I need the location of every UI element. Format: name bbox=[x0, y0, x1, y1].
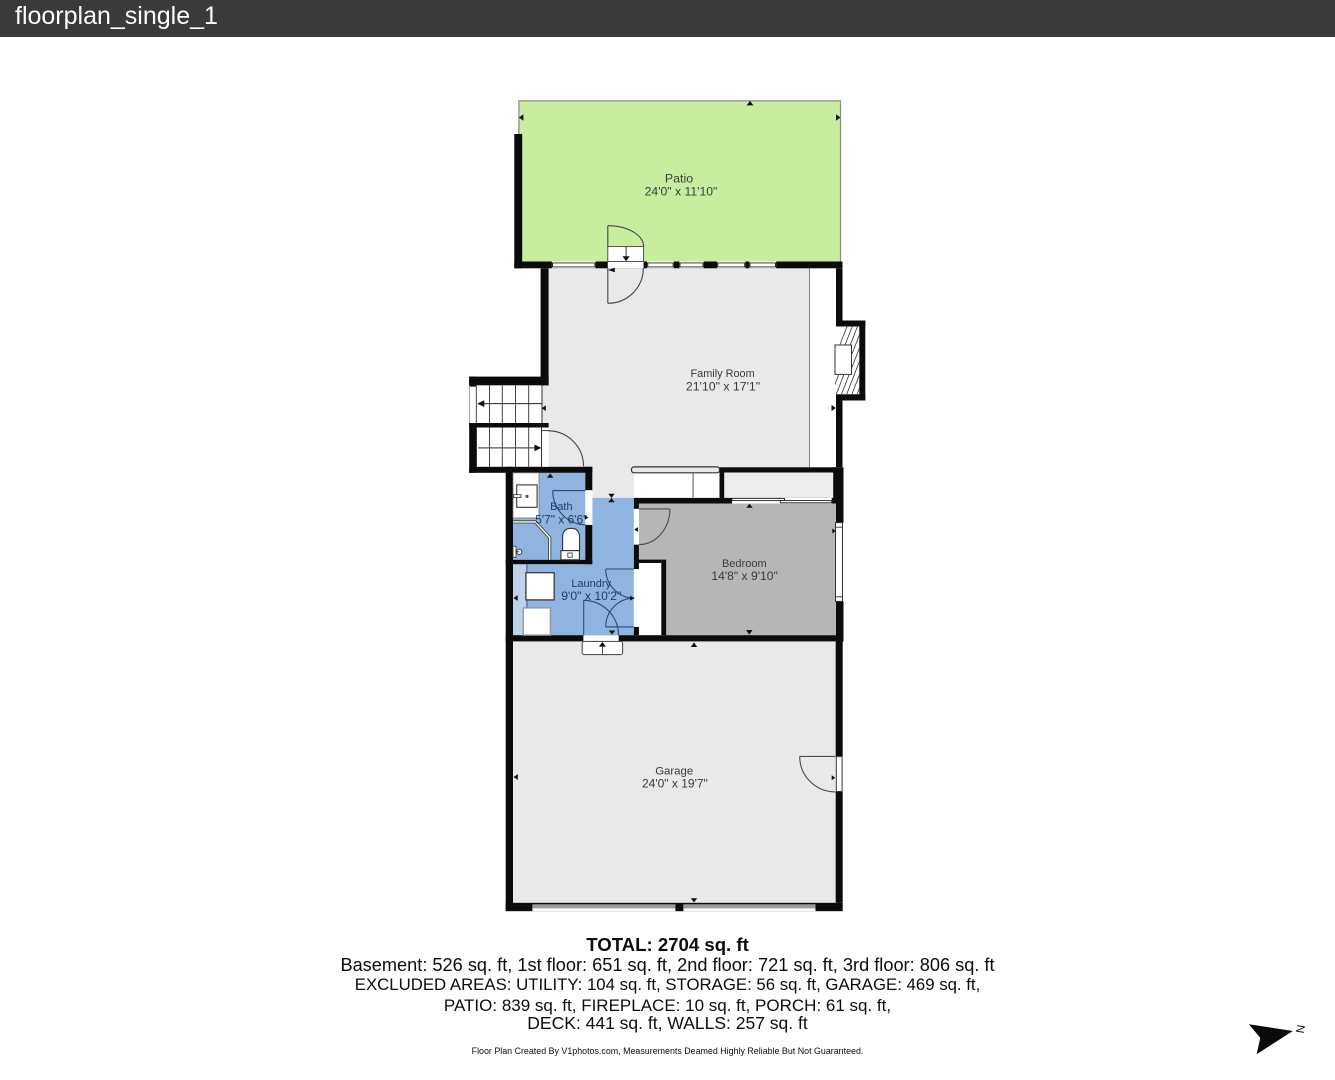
svg-text:24'0" x 19'7": 24'0" x 19'7" bbox=[642, 777, 708, 791]
svg-text:Bath: Bath bbox=[550, 501, 572, 513]
svg-text:Patio: Patio bbox=[665, 171, 693, 185]
svg-text:Family Room: Family Room bbox=[691, 368, 755, 380]
svg-text:21'10" x 17'1": 21'10" x 17'1" bbox=[686, 380, 760, 394]
svg-text:Laundry: Laundry bbox=[571, 578, 611, 590]
svg-text:5'7" x 6'6": 5'7" x 6'6" bbox=[535, 513, 587, 527]
svg-text:Bedroom: Bedroom bbox=[722, 558, 767, 570]
svg-text:Garage: Garage bbox=[655, 765, 693, 777]
svg-text:9'0" x 10'2": 9'0" x 10'2" bbox=[561, 589, 621, 603]
svg-text:24'0" x 11'10": 24'0" x 11'10" bbox=[645, 185, 718, 199]
svg-text:14'8" x 9'10": 14'8" x 9'10" bbox=[711, 569, 777, 583]
